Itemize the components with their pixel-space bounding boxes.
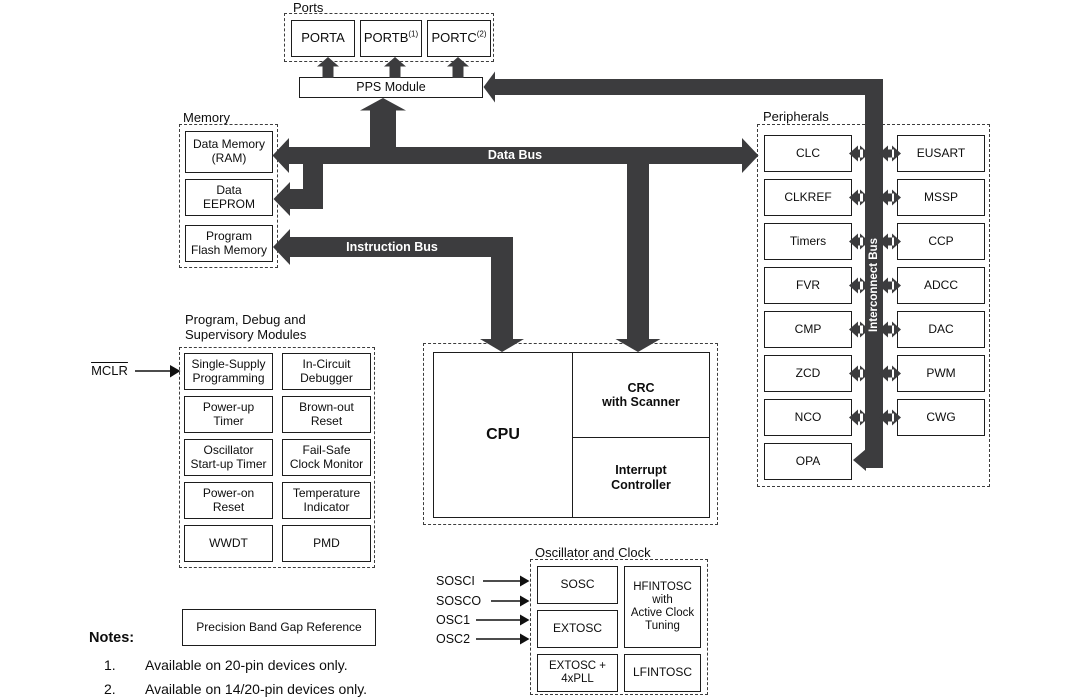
- notes-heading: Notes:: [89, 630, 134, 646]
- oscillator-start-up-timer-box: Oscillator Start-up Timer: [184, 439, 273, 476]
- eusart-box: EUSART: [897, 135, 985, 172]
- oscillator-pin-arrows: [476, 576, 530, 645]
- extosc-4xpll-box: EXTOSC + 4xPLL: [537, 654, 618, 692]
- block-diagram: Data Bus Instruction Bus Interconnect Bu…: [0, 0, 1080, 700]
- eeprom-branch: [303, 162, 323, 209]
- pps-branch: [370, 108, 396, 148]
- pwm-box: PWM: [897, 355, 985, 392]
- fvr-box: FVR: [764, 267, 852, 304]
- port-b-box: PORTB(1): [360, 20, 422, 57]
- pin-label-sosco: SOSCO: [436, 594, 481, 608]
- pin-label-osc1: OSC1: [436, 613, 470, 627]
- adcc-box: ADCC: [897, 267, 985, 304]
- timers-box: Timers: [764, 223, 852, 260]
- note-2-text: Available on 14/20-pin devices only.: [145, 681, 367, 697]
- nco-box: NCO: [764, 399, 852, 436]
- fail-safe-clock-monitor-box: Fail-Safe Clock Monitor: [282, 439, 371, 476]
- power-up-timer-box: Power-up Timer: [184, 396, 273, 433]
- interconnect-bus-label: Interconnect Bus: [866, 220, 882, 350]
- wwdt-box: WWDT: [184, 525, 273, 562]
- data-bus-label: Data Bus: [455, 147, 575, 163]
- sosc-box: SOSC: [537, 566, 618, 604]
- band-gap-reference-box: Precision Band Gap Reference: [182, 609, 376, 646]
- memory-group-label: Memory: [183, 110, 230, 125]
- debug-group-label: Program, Debug and Supervisory Modules: [185, 312, 306, 343]
- zcd-box: ZCD: [764, 355, 852, 392]
- port-c-box: PORTC(2): [427, 20, 491, 57]
- clkref-box: CLKREF: [764, 179, 852, 216]
- dac-box: DAC: [897, 311, 985, 348]
- port-a-box: PORTA: [291, 20, 355, 57]
- in-circuit-debugger-box: In-Circuit Debugger: [282, 353, 371, 390]
- cpu-box: CPU: [433, 352, 573, 518]
- note-2-number: 2.: [104, 681, 116, 697]
- peripherals-group-label: Peripherals: [763, 109, 829, 124]
- pps-input-arrow: [484, 72, 884, 103]
- data-memory-ram-box: Data Memory (RAM): [185, 131, 273, 173]
- oscillator-group-label: Oscillator and Clock: [535, 545, 651, 560]
- pin-label-sosci: SOSCI: [436, 574, 475, 588]
- ccp-box: CCP: [897, 223, 985, 260]
- cwg-box: CWG: [897, 399, 985, 436]
- instruction-bus-label: Instruction Bus: [329, 238, 455, 256]
- cmp-box: CMP: [764, 311, 852, 348]
- pin-label-osc2: OSC2: [436, 632, 470, 646]
- opa-box: OPA: [764, 443, 852, 480]
- crc-branch: [627, 162, 649, 340]
- brown-out-reset-box: Brown-out Reset: [282, 396, 371, 433]
- single-supply-programming-box: Single-Supply Programming: [184, 353, 273, 390]
- crc-with-scanner-box: CRC with Scanner: [572, 352, 710, 438]
- mssp-box: MSSP: [897, 179, 985, 216]
- pps-module-box: PPS Module: [299, 77, 483, 98]
- clc-box: CLC: [764, 135, 852, 172]
- mclr-arrow: [135, 365, 181, 378]
- program-flash-memory-box: Program Flash Memory: [185, 225, 273, 262]
- power-on-reset-box: Power-on Reset: [184, 482, 273, 519]
- note-1-text: Available on 20-pin devices only.: [145, 657, 348, 673]
- temperature-indicator-box: Temperature Indicator: [282, 482, 371, 519]
- data-bus-arrow: [273, 98, 759, 352]
- hfintosc-box: HFINTOSC with Active Clock Tuning: [624, 566, 701, 648]
- pmd-box: PMD: [282, 525, 371, 562]
- extosc-box: EXTOSC: [537, 610, 618, 648]
- note-1-number: 1.: [104, 657, 116, 673]
- lfintosc-box: LFINTOSC: [624, 654, 701, 692]
- data-eeprom-box: Data EEPROM: [185, 179, 273, 216]
- interrupt-controller-box: Interrupt Controller: [572, 437, 710, 518]
- ports-group-label: Ports: [293, 0, 323, 15]
- mclr-label: MCLR: [86, 363, 133, 378]
